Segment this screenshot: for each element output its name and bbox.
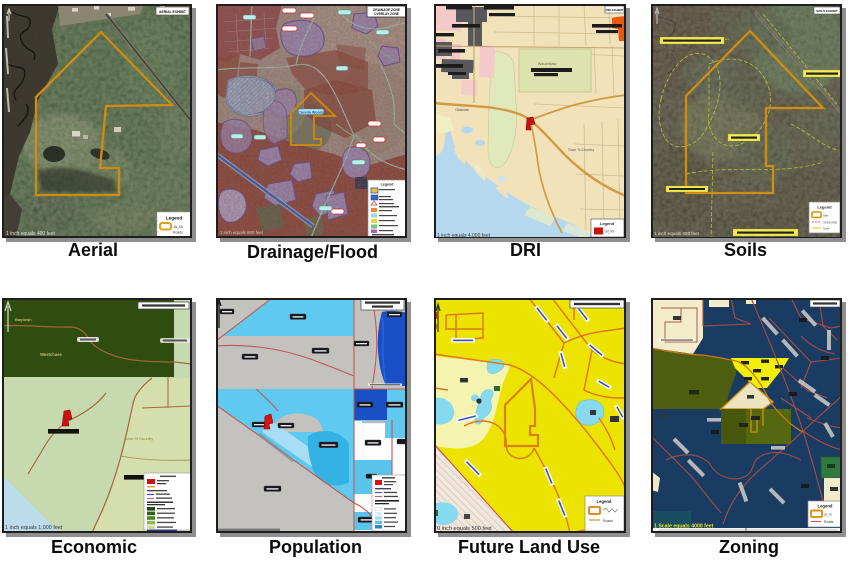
svg-text:Legend: Legend <box>166 216 183 221</box>
svg-text:Legend: Legend <box>818 504 833 509</box>
svg-text:Legend: Legend <box>597 499 612 504</box>
svg-text:Town 'N Country: Town 'N Country <box>568 148 594 152</box>
svg-text:Casella Woods: Casella Woods <box>298 110 324 114</box>
svg-text:Roads: Roads <box>824 520 834 524</box>
svg-text:DRI EXHIBIT: DRI EXHIBIT <box>606 8 624 12</box>
svg-text:1 inch equals 400 feet: 1 inch equals 400 feet <box>654 231 700 236</box>
svg-text:Legend: Legend <box>817 205 832 210</box>
svg-text:SOILS EXHIBIT: SOILS EXHIBIT <box>816 9 838 13</box>
svg-text:Baytown: Baytown <box>15 317 32 322</box>
svg-text:Wauchitaw: Wauchitaw <box>538 62 557 66</box>
svg-text:Soils: Soils <box>823 227 830 231</box>
svg-text:Roads: Roads <box>603 519 613 523</box>
svg-text:dri_09: dri_09 <box>605 230 614 234</box>
svg-text:zo_m: zo_m <box>824 513 832 517</box>
svg-text:Legend: Legend <box>381 183 394 187</box>
svg-text:Legend: Legend <box>600 221 615 226</box>
svg-text:1 Scale equals 4000 feet: 1 Scale equals 4000 feet <box>654 524 714 530</box>
svg-text:Westchase: Westchase <box>40 352 62 357</box>
svg-text:Town 'N Country: Town 'N Country <box>124 436 153 441</box>
svg-text:Oldsmar: Oldsmar <box>455 108 469 112</box>
svg-text:Site: Site <box>823 214 829 218</box>
svg-text:1 inch equals 600 feet: 1 inch equals 600 feet <box>220 230 264 235</box>
svg-text:OVERLAY ZONE: OVERLAY ZONE <box>374 12 399 16</box>
svg-text:JA_09: JA_09 <box>173 225 183 229</box>
svg-text:1 inch equals 1,000 feet: 1 inch equals 1,000 feet <box>5 525 63 531</box>
svg-text:AERIAL EXHIBIT: AERIAL EXHIBIT <box>159 10 187 14</box>
svg-text:Roads: Roads <box>173 231 183 235</box>
svg-text:70/65 AVE: 70/65 AVE <box>823 221 837 225</box>
